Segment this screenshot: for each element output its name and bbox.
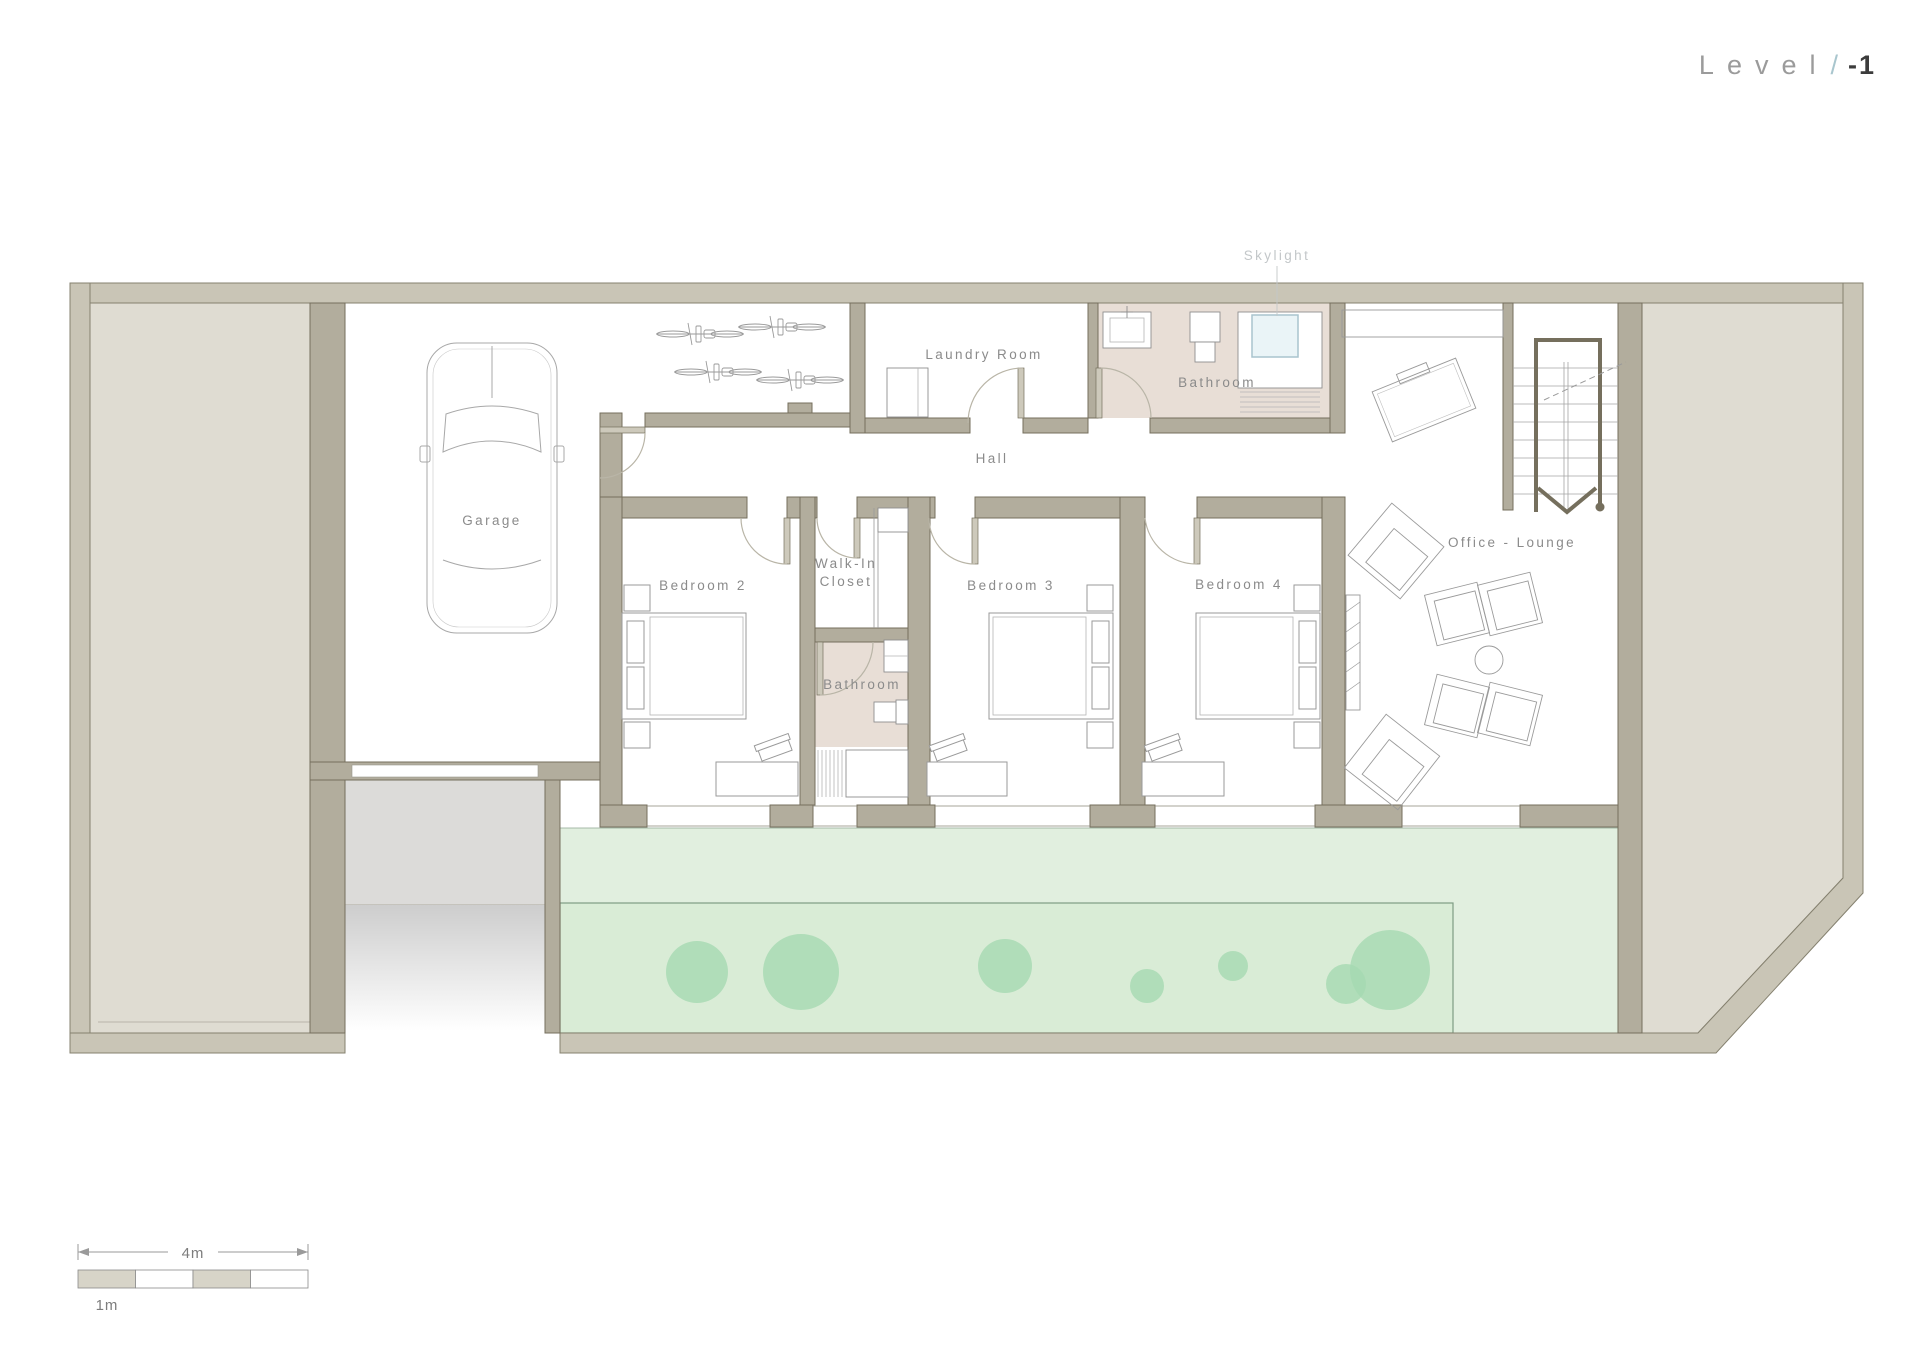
bathroom-middle-label: Bathroom <box>823 677 901 692</box>
desk <box>927 762 1007 796</box>
bicycle-icon <box>674 361 762 383</box>
wall-south-pier-4 <box>1090 805 1155 827</box>
nightstand <box>1294 722 1320 748</box>
staircase-icon <box>1513 340 1626 512</box>
wall-bedroom4-office <box>1322 497 1345 805</box>
tree-icon <box>1350 930 1430 1010</box>
door-leaf <box>1018 368 1024 418</box>
door-leaf <box>1096 368 1102 418</box>
scale-bar: 4m 1m <box>78 1244 308 1314</box>
bicycle-icon <box>738 316 826 338</box>
wall-bedrooms-north-e <box>1197 497 1322 518</box>
wall-driveway-east <box>545 780 560 1033</box>
wall-south-pier-5 <box>1315 805 1402 827</box>
wall-bedroom3-bedroom4 <box>1120 497 1145 805</box>
armchair-icon <box>1348 503 1444 599</box>
arrowhead-right-icon <box>297 1248 308 1256</box>
walk-in-closet-fittings <box>874 508 908 628</box>
scale-segment <box>251 1270 309 1288</box>
wall-south-pier-1 <box>600 805 647 827</box>
nightstand <box>1087 722 1113 748</box>
door-swing-arc <box>741 518 787 564</box>
scale-unit-label: 1m <box>96 1297 119 1314</box>
nightstand <box>1087 585 1113 611</box>
shower-tray <box>846 750 908 797</box>
door-leaf <box>972 518 978 564</box>
door-bedroom2 <box>741 518 790 564</box>
arrowhead-left-icon <box>78 1248 89 1256</box>
bedroom2-label: Bedroom 2 <box>659 578 747 593</box>
door-bedroom4 <box>1145 518 1200 564</box>
wall-laundry-south-a <box>865 418 970 433</box>
toilet-bowl <box>1195 342 1215 362</box>
door-leaf <box>854 518 860 558</box>
toilet-tank <box>896 700 908 724</box>
tree-icon <box>763 934 839 1010</box>
pillow <box>1092 667 1109 709</box>
tree-icon <box>978 939 1032 993</box>
bicycle-icon <box>656 323 744 345</box>
wall-stair-west <box>1503 303 1513 510</box>
wall-south-pier-6 <box>1520 805 1618 827</box>
floor-fills <box>90 303 1843 1053</box>
stair-rail-end <box>1596 503 1605 512</box>
pillow <box>1299 621 1316 663</box>
shower-grate-lines <box>818 750 842 797</box>
floor-plan-drawing: Garage Laundry Room Bathroom Skylight Ha… <box>0 0 1920 1357</box>
bathroom-upper-label: Bathroom <box>1178 375 1256 390</box>
wall-garage-east-stub <box>600 413 622 497</box>
outer-wall-left <box>70 283 90 1053</box>
car-top-view-icon <box>420 343 564 633</box>
washing-machine-icon <box>887 368 928 417</box>
tree-icon <box>666 941 728 1003</box>
chair-icon <box>1144 734 1184 762</box>
scale-segment <box>136 1270 194 1288</box>
bedroom4-furniture <box>1142 585 1320 796</box>
sofa-icon <box>1425 674 1490 738</box>
stair-direction-arrow <box>1538 488 1596 512</box>
driveway-upper <box>345 780 545 905</box>
wall-bedrooms-north-d <box>975 497 1120 518</box>
wall-closet-west <box>800 497 815 805</box>
bicycle-icon <box>756 369 844 391</box>
nightstand <box>624 585 650 611</box>
toilet-icon <box>874 702 896 722</box>
wall-laundry-west <box>850 303 865 433</box>
office-lounge-label: Office - Lounge <box>1448 535 1576 550</box>
stair-center-rail <box>1564 362 1568 510</box>
sofa-icon <box>1425 582 1490 646</box>
office-desk <box>1370 352 1476 442</box>
closet-shelf <box>878 508 908 532</box>
door-swing-arc <box>1145 518 1197 564</box>
nightstand <box>1294 585 1320 611</box>
tree-icon <box>1326 964 1366 1004</box>
wall-south-pier-2 <box>770 805 813 827</box>
wall-bath-upper-east <box>1330 303 1345 433</box>
tree-icon <box>1130 969 1164 1003</box>
bedroom3-furniture <box>927 585 1113 796</box>
door-laundry <box>968 368 1024 423</box>
wall-garage-west <box>310 303 345 1033</box>
chair-icon <box>754 734 794 762</box>
wall-closet-east <box>908 497 930 805</box>
door-swing-arc <box>968 368 1023 423</box>
desk <box>716 762 798 796</box>
counter <box>1342 310 1503 337</box>
bedroom4-label: Bedroom 4 <box>1195 577 1283 592</box>
bedroom2-furniture <box>622 585 798 796</box>
wall-bedroom2-west <box>600 497 622 805</box>
door-leaf <box>600 427 645 433</box>
wall-hall-north <box>645 413 850 427</box>
garage-label: Garage <box>462 513 521 528</box>
scale-segment <box>78 1270 136 1288</box>
desk <box>1142 762 1224 796</box>
pillow <box>627 621 644 663</box>
outer-wall-bottom-left <box>70 1033 345 1053</box>
pillow <box>627 667 644 709</box>
door-leaf <box>817 642 823 695</box>
walk-in-closet-label: Walk-InCloset <box>815 556 877 589</box>
tree-icon <box>1218 951 1248 981</box>
door-closet <box>817 518 860 558</box>
armchair-icon <box>1344 714 1439 809</box>
door-bedroom3 <box>929 518 978 564</box>
door-leaf <box>1194 518 1200 564</box>
door-leaf <box>784 518 790 564</box>
floor-plan-canvas: Level/-1 <box>0 0 1920 1357</box>
pillow <box>1092 621 1109 663</box>
radiator-icon <box>1346 595 1360 710</box>
wall-south-pier-3 <box>857 805 935 827</box>
toilet-icon <box>1190 312 1220 342</box>
scale-total-label: 4m <box>182 1245 205 1262</box>
scale-segment <box>193 1270 251 1288</box>
skylight-glass <box>1252 315 1298 357</box>
skylight-label: Skylight <box>1244 248 1310 263</box>
wall-laundry-south-b <box>1023 418 1088 433</box>
wall-hall-north-pier <box>788 403 812 413</box>
chair-icon <box>929 734 969 762</box>
garage-door-opening <box>352 765 538 777</box>
hall-label: Hall <box>976 451 1009 466</box>
sofa-icon <box>1478 682 1543 746</box>
stair-treads <box>1513 368 1618 494</box>
round-table-icon <box>1475 646 1503 674</box>
wall-office-east <box>1618 303 1642 1033</box>
laundry-room-label: Laundry Room <box>925 347 1042 362</box>
nightstand <box>624 722 650 748</box>
bike-rack <box>656 316 844 391</box>
bedroom3-label: Bedroom 3 <box>967 578 1055 593</box>
radiator-hatch <box>1346 602 1360 692</box>
outer-wall-top <box>70 283 1863 303</box>
door-swing-arc <box>929 518 975 564</box>
pillow <box>1299 667 1316 709</box>
wall-bath-upper-south <box>1150 418 1330 433</box>
door-swing-arc <box>817 518 857 558</box>
left-solid-block <box>90 303 310 1033</box>
driveway-ramp <box>345 905 545 1053</box>
sofa-icon <box>1478 572 1543 636</box>
